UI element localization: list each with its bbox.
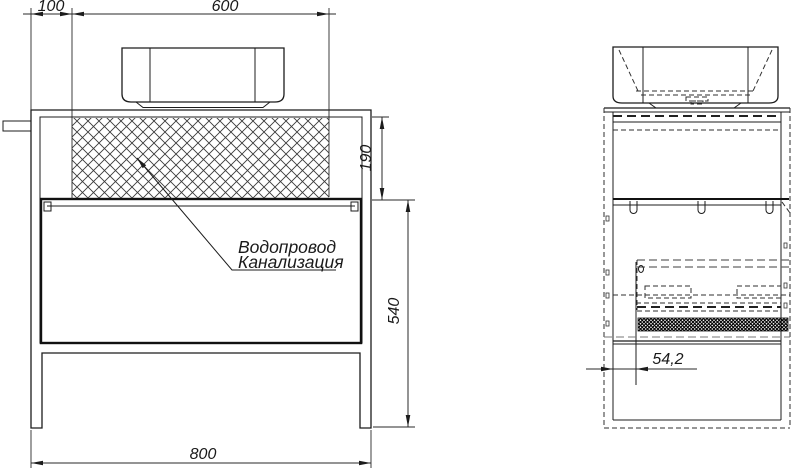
side-cabinet-body	[604, 108, 790, 428]
dimension-bottom: 800	[31, 430, 371, 468]
slide-bracket-left	[645, 286, 691, 298]
slide-bracket-right	[737, 286, 781, 298]
technical-drawing-canvas: Водопровод Канализация 100 600 190	[0, 0, 800, 470]
dim-800-label: 800	[190, 446, 217, 463]
pipe-zone-hatch	[72, 118, 329, 199]
fastener-marks	[606, 216, 787, 326]
sink-front	[122, 48, 284, 108]
drawing-sheet: Водопровод Канализация 100 600 190	[0, 0, 800, 470]
wall-bracket	[3, 121, 31, 131]
drawer-mechanism-hidden	[604, 216, 790, 385]
dimension-side-offset: 54,2	[586, 351, 697, 371]
hinge-clip-3	[766, 201, 773, 214]
front-view: Водопровод Канализация 100 600 190	[3, 0, 415, 468]
dim-600-label: 600	[212, 0, 239, 15]
slide-rail-section	[638, 318, 788, 331]
dimension-right: 190 540	[358, 117, 415, 427]
dim-100-label: 100	[38, 0, 65, 15]
hinge-clip-2	[698, 201, 705, 214]
sewerage-label: Канализация	[238, 252, 344, 272]
side-view: 54,2	[586, 47, 790, 428]
dim-190-label: 190	[358, 145, 375, 172]
dim-540-label: 540	[386, 298, 403, 325]
hinge-clip-1	[630, 201, 637, 214]
drain-hidden-line	[686, 97, 708, 101]
sink-side	[613, 47, 778, 108]
dim-54-2-label: 54,2	[652, 351, 683, 368]
